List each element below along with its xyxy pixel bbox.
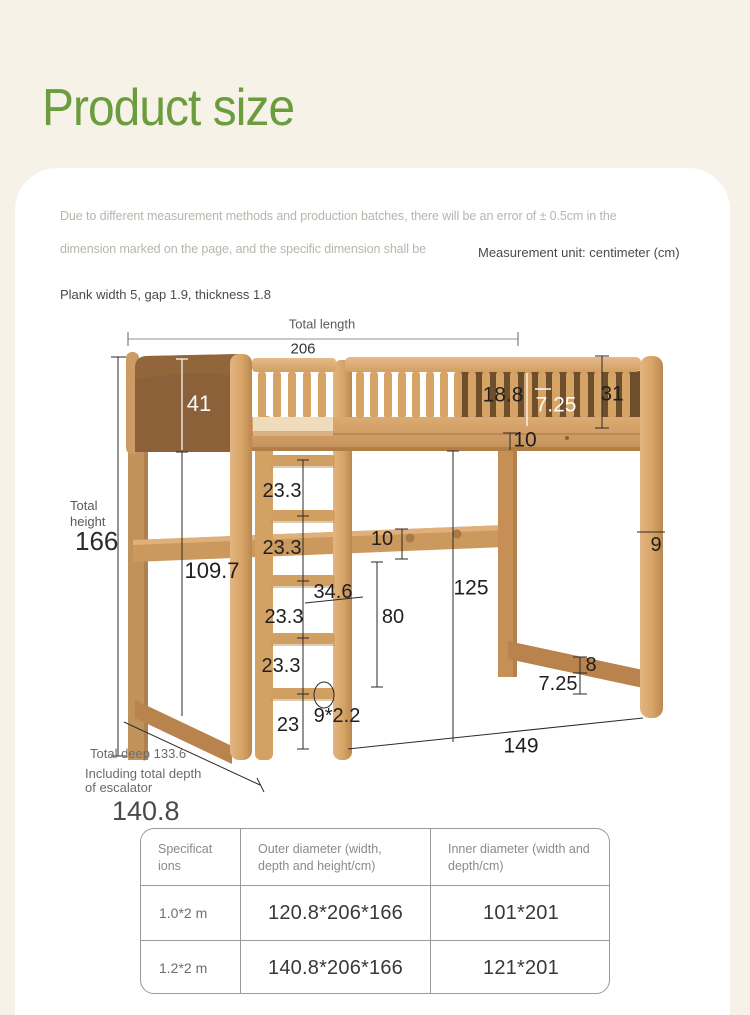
dim-under-frame-height: 109.7 — [184, 560, 239, 582]
dim-ladder-gap-2: 23.3 — [263, 538, 302, 558]
page-title: Product size — [42, 78, 294, 138]
ladder-left-stile — [255, 416, 273, 760]
dim-rail-floor-gap: 80 — [382, 607, 404, 627]
dim-escalator-note-1: Including total depth — [85, 767, 201, 780]
bed-deck — [253, 417, 333, 431]
dim-rung-section: 9*2.2 — [314, 706, 361, 726]
dim-total-depth-value: 140.8 — [112, 798, 180, 825]
dim-ladder-width: 34.6 — [314, 582, 353, 602]
dim-headboard-height: 41 — [187, 393, 211, 415]
dim-foot-rail-gap: 7.25 — [539, 674, 578, 694]
dim-total-height-value: 166 — [75, 528, 118, 554]
dim-clearance-height: 125 — [453, 578, 488, 599]
spec-row-label: 1.0*2 m — [141, 886, 241, 941]
page: Product size Due to different measuremen… — [0, 0, 750, 1015]
hook-peg — [406, 534, 415, 543]
dim-total-length-label: Total length — [289, 318, 356, 331]
dim-escalator-note-2: of escalator — [85, 781, 152, 794]
dim-total-deep-label: Total deep 133.6 — [90, 747, 186, 760]
dim-total-height-word1: Total — [70, 498, 105, 514]
dim-slat-pitch: 7.25 — [536, 395, 577, 416]
dim-bottom-gap: 23 — [277, 715, 299, 735]
spec-outer-value: 120.8*206*166 — [241, 886, 431, 941]
spec-outer-value: 140.8*206*166 — [241, 941, 431, 994]
dim-ladder-gap-4: 23.3 — [262, 656, 301, 676]
header-text: Inner diameter (width and depth/cm) — [448, 841, 597, 875]
spec-table: Specifications Outer diameter (width, de… — [140, 828, 610, 994]
dim-post-width: 9 — [650, 535, 661, 555]
guardrail-slats-left — [258, 371, 326, 419]
guardrail-top-rail-right — [345, 357, 641, 372]
dim-ladder-gap-1: 23.3 — [263, 481, 302, 501]
dim-ladder-gap-3: 23.3 — [265, 607, 304, 627]
spec-inner-value: 121*201 — [431, 941, 610, 994]
dim-guardrail-height: 31 — [600, 384, 623, 405]
dim-frame-thickness: 10 — [513, 430, 536, 451]
header-text: Specifications — [158, 841, 214, 875]
front-left-post — [230, 354, 252, 760]
spec-row-label: 1.2*2 m — [141, 941, 241, 994]
dim-slat-gap: 18.8 — [483, 385, 524, 406]
spec-table-header-specifications: Specifications — [141, 829, 241, 886]
header-text: Outer diameter (width, depth and height/… — [258, 841, 416, 875]
spec-table-header-outer-diameter: Outer diameter (width, depth and height/… — [241, 829, 431, 886]
guardrail-top-rail-left — [252, 358, 336, 372]
dim-foot-rail-height: 8 — [585, 655, 596, 675]
hook-peg — [453, 530, 462, 539]
dim-hook-rail-height: 10 — [371, 529, 393, 549]
content-card: Due to different measurement methods and… — [15, 168, 730, 1015]
spec-table-header-inner-diameter: Inner diameter (width and depth/cm) — [431, 829, 610, 886]
dim-inner-length: 149 — [503, 736, 538, 757]
spec-inner-value: 101*201 — [431, 886, 610, 941]
dim-total-length-value: 206 — [290, 342, 315, 357]
